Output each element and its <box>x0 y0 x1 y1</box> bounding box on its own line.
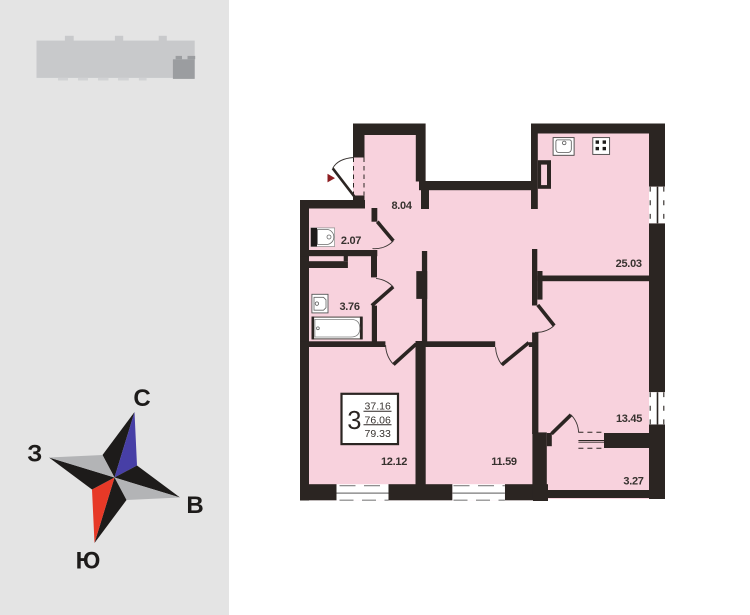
svg-text:2.07: 2.07 <box>341 235 361 247</box>
svg-text:76.06: 76.06 <box>365 415 391 427</box>
svg-text:13.45: 13.45 <box>616 413 642 425</box>
svg-text:3.76: 3.76 <box>339 301 359 313</box>
svg-text:11.59: 11.59 <box>491 456 517 468</box>
svg-text:8.04: 8.04 <box>391 200 412 212</box>
svg-text:3.27: 3.27 <box>623 476 643 488</box>
svg-text:37.16: 37.16 <box>365 400 391 412</box>
svg-text:79.33: 79.33 <box>365 428 391 440</box>
svg-text:В: В <box>186 492 203 519</box>
svg-text:12.12: 12.12 <box>381 456 407 468</box>
svg-text:С: С <box>133 385 150 412</box>
svg-text:25.03: 25.03 <box>616 258 642 270</box>
svg-text:З: З <box>27 441 42 468</box>
svg-text:3: 3 <box>347 407 361 435</box>
svg-text:Ю: Ю <box>76 548 101 575</box>
